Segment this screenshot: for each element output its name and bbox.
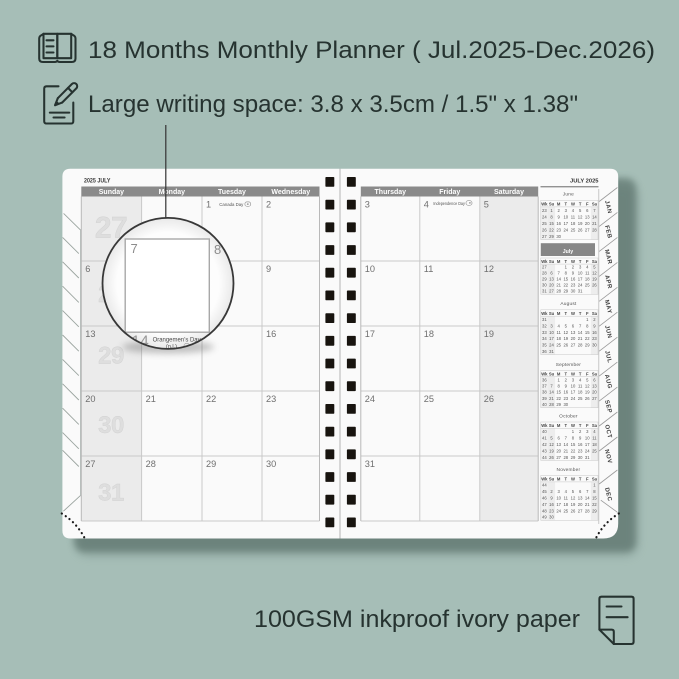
svg-text:11: 11: [585, 271, 590, 276]
svg-text:Friday: Friday: [439, 189, 460, 196]
svg-text:26: 26: [542, 227, 547, 232]
svg-text:15: 15: [556, 390, 561, 395]
svg-text:T: T: [565, 202, 568, 207]
svg-text:28: 28: [563, 455, 568, 460]
svg-text:T: T: [579, 259, 582, 264]
svg-text:W: W: [571, 423, 575, 428]
svg-text:23: 23: [571, 283, 576, 288]
svg-text:22: 22: [571, 448, 576, 453]
svg-text:15: 15: [592, 496, 597, 501]
svg-text:11: 11: [592, 436, 597, 441]
svg-text:16: 16: [556, 221, 561, 226]
svg-text:16: 16: [571, 277, 576, 282]
svg-text:40: 40: [542, 402, 547, 407]
svg-text:4: 4: [424, 200, 429, 210]
svg-text:12: 12: [571, 496, 576, 501]
svg-text:24: 24: [585, 448, 590, 453]
svg-text:24: 24: [571, 396, 576, 401]
svg-text:18: 18: [592, 442, 597, 447]
svg-text:Thursday: Thursday: [375, 189, 407, 196]
svg-text:F: F: [586, 259, 589, 264]
svg-text:26: 26: [549, 455, 554, 460]
svg-text:Su: Su: [549, 477, 555, 482]
svg-text:29: 29: [206, 459, 216, 469]
svg-text:28: 28: [578, 343, 583, 348]
svg-text:100GSM inkproof ivory paper: 100GSM inkproof ivory paper: [254, 606, 580, 633]
svg-text:25: 25: [571, 227, 576, 232]
svg-text:26: 26: [484, 394, 494, 404]
svg-text:M: M: [557, 259, 561, 264]
svg-text:M: M: [557, 311, 561, 316]
svg-text:24: 24: [563, 227, 568, 232]
svg-text:July: July: [563, 249, 573, 255]
svg-text:August: August: [560, 301, 577, 307]
svg-text:Orangemen’s Day: Orangemen’s Day: [153, 336, 202, 343]
svg-text:Sa: Sa: [592, 477, 598, 482]
svg-text:16: 16: [549, 502, 554, 507]
svg-text:30: 30: [98, 412, 124, 439]
svg-text:Independence Day: Independence Day: [433, 201, 465, 206]
svg-text:12: 12: [549, 442, 554, 447]
svg-text:30: 30: [542, 283, 547, 288]
svg-text:27: 27: [542, 234, 547, 239]
svg-text:Sa: Sa: [592, 259, 598, 264]
svg-text:26: 26: [571, 508, 576, 513]
svg-text:16: 16: [592, 330, 597, 335]
svg-text:20: 20: [585, 221, 590, 226]
svg-text:Large writing space: 3.8 x 3.5: Large writing space: 3.8 x 3.5cm / 1.5" …: [88, 91, 578, 118]
svg-text:21: 21: [592, 221, 597, 226]
svg-text:23: 23: [266, 394, 276, 404]
svg-text:October: October: [559, 414, 578, 420]
svg-text:27: 27: [556, 455, 561, 460]
svg-text:17: 17: [556, 502, 561, 507]
svg-text:17: 17: [365, 329, 375, 339]
svg-text:22: 22: [585, 336, 590, 341]
svg-text:20: 20: [85, 394, 95, 404]
svg-text:43: 43: [542, 448, 547, 453]
svg-text:21: 21: [563, 448, 568, 453]
svg-text:23: 23: [592, 336, 597, 341]
svg-text:24: 24: [556, 508, 561, 513]
svg-text:19: 19: [585, 390, 590, 395]
svg-text:November: November: [557, 467, 581, 473]
svg-text:30: 30: [578, 455, 583, 460]
svg-text:JULY 2025: JULY 2025: [570, 179, 599, 185]
svg-text:12: 12: [592, 271, 597, 276]
svg-text:30: 30: [571, 289, 576, 294]
svg-text:25: 25: [424, 394, 434, 404]
svg-text:19: 19: [549, 448, 554, 453]
svg-text:14: 14: [585, 496, 590, 501]
svg-text:20: 20: [578, 502, 583, 507]
svg-text:23: 23: [556, 227, 561, 232]
svg-text:17: 17: [549, 336, 554, 341]
svg-text:47: 47: [542, 502, 547, 507]
svg-text:34: 34: [542, 336, 547, 341]
svg-text:44: 44: [542, 455, 547, 460]
svg-text:19: 19: [571, 502, 576, 507]
svg-text:30: 30: [592, 343, 597, 348]
svg-text:14: 14: [556, 277, 561, 282]
svg-text:42: 42: [542, 442, 547, 447]
svg-text:17: 17: [563, 221, 568, 226]
svg-text:13: 13: [585, 214, 590, 219]
svg-text:20: 20: [571, 336, 576, 341]
svg-text:9: 9: [266, 264, 271, 274]
svg-text:24: 24: [365, 394, 375, 404]
svg-text:Wk: Wk: [541, 202, 548, 207]
svg-text:29: 29: [98, 342, 124, 369]
svg-text:W: W: [571, 202, 575, 207]
svg-text:27: 27: [542, 265, 547, 270]
svg-text:36: 36: [542, 349, 547, 354]
svg-text:32: 32: [542, 323, 547, 328]
svg-text:June: June: [563, 191, 574, 197]
svg-text:31: 31: [578, 289, 583, 294]
svg-text:17: 17: [585, 442, 590, 447]
svg-text:16: 16: [578, 442, 583, 447]
svg-text:Sa: Sa: [592, 371, 598, 376]
svg-text:28: 28: [585, 508, 590, 513]
svg-text:10: 10: [578, 271, 583, 276]
svg-text:26: 26: [578, 227, 583, 232]
svg-text:23: 23: [578, 448, 583, 453]
svg-text:22: 22: [549, 227, 554, 232]
svg-text:Wk: Wk: [541, 311, 548, 316]
svg-text:30: 30: [266, 459, 276, 469]
svg-text:26: 26: [563, 343, 568, 348]
svg-text:T: T: [565, 371, 568, 376]
svg-text:30: 30: [549, 515, 554, 520]
svg-text:20: 20: [549, 283, 554, 288]
svg-text:Su: Su: [549, 371, 555, 376]
svg-text:3: 3: [365, 200, 370, 210]
svg-text:13: 13: [578, 496, 583, 501]
svg-text:29: 29: [592, 508, 597, 513]
svg-text:27: 27: [592, 396, 597, 401]
svg-text:10: 10: [571, 384, 576, 389]
svg-text:T: T: [579, 477, 582, 482]
svg-text:10: 10: [549, 330, 554, 335]
svg-text:M: M: [557, 477, 561, 482]
svg-text:29: 29: [563, 289, 568, 294]
svg-text:15: 15: [563, 277, 568, 282]
svg-text:20: 20: [592, 390, 597, 395]
svg-text:26: 26: [592, 283, 597, 288]
svg-text:48: 48: [542, 508, 547, 513]
svg-text:Su: Su: [549, 423, 555, 428]
svg-text:18: 18: [578, 390, 583, 395]
svg-text:14: 14: [563, 442, 568, 447]
svg-text:29: 29: [549, 234, 554, 239]
svg-text:28: 28: [146, 459, 156, 469]
svg-text:11: 11: [578, 384, 583, 389]
svg-text:Wk: Wk: [541, 423, 548, 428]
svg-text:17: 17: [578, 277, 583, 282]
svg-text:W: W: [571, 477, 575, 482]
svg-text:W: W: [571, 259, 575, 264]
svg-text:10: 10: [563, 214, 568, 219]
svg-text:25: 25: [585, 283, 590, 288]
svg-text:12: 12: [563, 330, 568, 335]
svg-text:Canada Day: Canada Day: [219, 202, 244, 207]
svg-text:15: 15: [549, 221, 554, 226]
svg-text:26: 26: [585, 396, 590, 401]
svg-text:31: 31: [542, 289, 547, 294]
svg-text:13: 13: [549, 277, 554, 282]
svg-text:31: 31: [365, 459, 375, 469]
svg-text:15: 15: [585, 330, 590, 335]
svg-text:Sa: Sa: [592, 311, 598, 316]
svg-text:T: T: [579, 202, 582, 207]
svg-text:46: 46: [542, 496, 547, 501]
svg-text:16: 16: [563, 390, 568, 395]
svg-text:25: 25: [542, 221, 547, 226]
svg-text:18: 18: [424, 329, 434, 339]
svg-text:17: 17: [571, 390, 576, 395]
svg-text:29: 29: [571, 455, 576, 460]
svg-text:Su: Su: [549, 259, 555, 264]
svg-text:Monday: Monday: [159, 189, 186, 196]
svg-text:W: W: [571, 311, 575, 316]
svg-text:18 Months Monthly Planner ( Ju: 18 Months Monthly Planner ( Jul.2025-Dec…: [88, 37, 655, 64]
svg-text:1: 1: [206, 200, 211, 210]
svg-text:2025 JULY: 2025 JULY: [84, 178, 111, 185]
svg-text:11: 11: [571, 214, 576, 219]
svg-text:36: 36: [542, 377, 547, 382]
svg-text:24: 24: [549, 343, 554, 348]
svg-text:W: W: [571, 371, 575, 376]
svg-text:14: 14: [578, 330, 583, 335]
svg-text:M: M: [557, 202, 561, 207]
svg-text:Wk: Wk: [541, 259, 548, 264]
svg-text:30: 30: [563, 402, 568, 407]
svg-text:Saturday: Saturday: [494, 189, 524, 196]
svg-text:T: T: [565, 477, 568, 482]
svg-text:13: 13: [85, 329, 95, 339]
svg-text:T: T: [565, 423, 568, 428]
svg-text:28: 28: [542, 271, 547, 276]
svg-text:31: 31: [549, 349, 554, 354]
svg-text:T: T: [579, 311, 582, 316]
svg-text:M: M: [557, 371, 561, 376]
svg-text:14: 14: [549, 390, 554, 395]
svg-text:F: F: [586, 371, 589, 376]
svg-text:31: 31: [98, 480, 124, 507]
svg-text:44: 44: [542, 483, 547, 488]
svg-text:15: 15: [571, 442, 576, 447]
svg-text:Wk: Wk: [541, 371, 548, 376]
svg-text:27: 27: [549, 289, 554, 294]
svg-text:20: 20: [556, 448, 561, 453]
svg-text:22: 22: [556, 396, 561, 401]
svg-text:31: 31: [542, 317, 547, 322]
svg-text:29: 29: [556, 402, 561, 407]
svg-text:39: 39: [542, 396, 547, 401]
svg-text:33: 33: [542, 330, 547, 335]
svg-text:13: 13: [592, 384, 597, 389]
svg-text:21: 21: [578, 336, 583, 341]
svg-text:T: T: [579, 423, 582, 428]
svg-text:7: 7: [131, 241, 138, 256]
svg-text:18: 18: [571, 221, 576, 226]
svg-text:25: 25: [592, 448, 597, 453]
svg-text:28: 28: [556, 289, 561, 294]
svg-text:38: 38: [542, 390, 547, 395]
svg-text:27: 27: [571, 343, 576, 348]
svg-text:Sunday: Sunday: [99, 189, 124, 196]
svg-text:37: 37: [542, 384, 547, 389]
svg-text:23: 23: [563, 396, 568, 401]
svg-text:F: F: [586, 202, 589, 207]
svg-text:22: 22: [563, 283, 568, 288]
svg-text:F: F: [586, 477, 589, 482]
svg-text:18: 18: [556, 336, 561, 341]
svg-text:25: 25: [563, 508, 568, 513]
svg-text:10: 10: [556, 496, 561, 501]
svg-text:21: 21: [556, 283, 561, 288]
svg-text:23: 23: [542, 208, 547, 213]
svg-text:40: 40: [542, 429, 547, 434]
svg-text:31: 31: [585, 455, 590, 460]
svg-text:11: 11: [564, 496, 569, 501]
svg-text:F: F: [586, 423, 589, 428]
svg-text:Sa: Sa: [592, 202, 598, 207]
svg-text:Tuesday: Tuesday: [218, 189, 246, 196]
svg-text:12: 12: [585, 384, 590, 389]
svg-text:19: 19: [484, 329, 494, 339]
svg-text:14: 14: [592, 214, 597, 219]
svg-text:13: 13: [556, 442, 561, 447]
svg-text:M: M: [557, 423, 561, 428]
svg-text:5: 5: [484, 200, 489, 210]
svg-text:18: 18: [585, 277, 590, 282]
svg-text:19: 19: [578, 221, 583, 226]
svg-text:27: 27: [578, 508, 583, 513]
svg-text:F: F: [586, 311, 589, 316]
svg-text:25: 25: [556, 343, 561, 348]
svg-text:Wk: Wk: [541, 477, 548, 482]
svg-text:27: 27: [85, 459, 95, 469]
svg-text:11: 11: [424, 264, 434, 274]
svg-text:Sa: Sa: [592, 423, 598, 428]
svg-text:10: 10: [585, 436, 590, 441]
svg-text:19: 19: [592, 277, 597, 282]
svg-text:September: September: [556, 362, 581, 368]
svg-text:45: 45: [542, 489, 547, 494]
svg-text:27: 27: [585, 227, 590, 232]
svg-text:28: 28: [549, 402, 554, 407]
svg-text:Su: Su: [549, 311, 555, 316]
svg-text:29: 29: [542, 277, 547, 282]
svg-text:6: 6: [85, 264, 90, 274]
svg-text:21: 21: [146, 394, 156, 404]
svg-text:18: 18: [563, 502, 568, 507]
svg-text:49: 49: [542, 515, 547, 520]
svg-text:11: 11: [556, 330, 561, 335]
svg-text:T: T: [565, 311, 568, 316]
svg-text:2: 2: [266, 200, 271, 210]
svg-text:29: 29: [585, 343, 590, 348]
svg-text:23: 23: [549, 508, 554, 513]
svg-text:22: 22: [592, 502, 597, 507]
svg-text:13: 13: [571, 330, 576, 335]
svg-text:24: 24: [542, 214, 547, 219]
svg-text:30: 30: [556, 234, 561, 239]
svg-text:Su: Su: [549, 202, 555, 207]
svg-text:Wednesday: Wednesday: [271, 189, 310, 196]
svg-text:T: T: [565, 259, 568, 264]
svg-text:21: 21: [549, 396, 554, 401]
svg-text:24: 24: [578, 283, 583, 288]
svg-text:35: 35: [542, 343, 547, 348]
svg-text:19: 19: [563, 336, 568, 341]
svg-text:25: 25: [578, 396, 583, 401]
svg-text:28: 28: [592, 227, 597, 232]
svg-text:16: 16: [266, 329, 276, 339]
svg-text:T: T: [579, 371, 582, 376]
svg-text:12: 12: [578, 214, 583, 219]
svg-text:21: 21: [585, 502, 590, 507]
svg-text:41: 41: [542, 436, 547, 441]
svg-text:12: 12: [484, 264, 494, 274]
svg-text:10: 10: [365, 264, 375, 274]
svg-text:22: 22: [206, 394, 216, 404]
